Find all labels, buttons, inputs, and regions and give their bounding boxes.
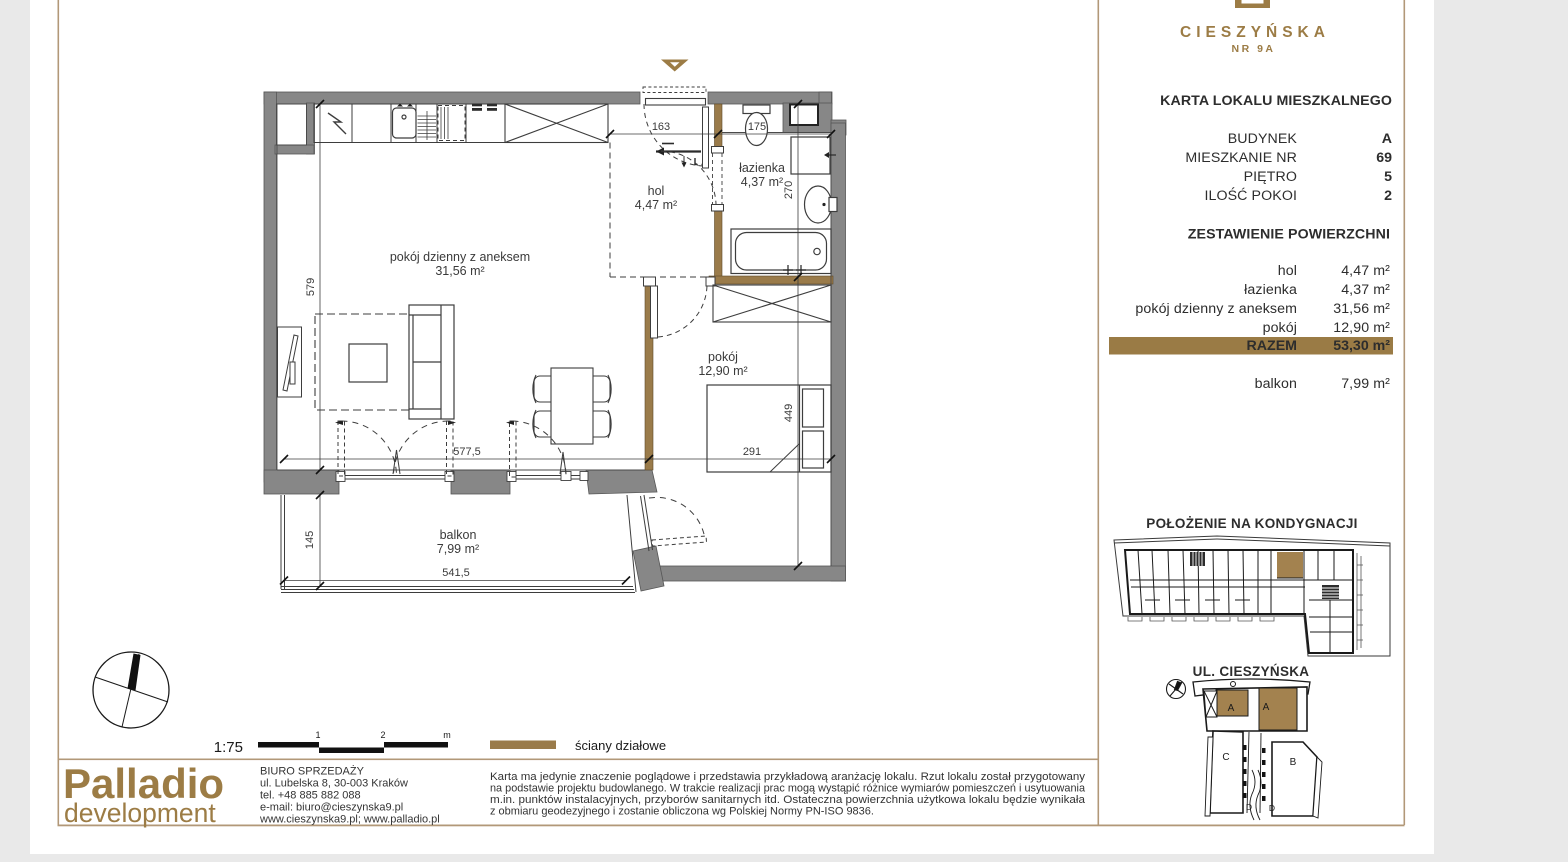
svg-text:pokój: pokój xyxy=(1263,320,1297,336)
svg-text:4,37 m²: 4,37 m² xyxy=(741,175,783,189)
svg-text:4,47 m²: 4,47 m² xyxy=(1341,263,1390,279)
svg-text:31,56 m²: 31,56 m² xyxy=(435,264,484,278)
svg-text:2: 2 xyxy=(380,730,385,740)
svg-text:m: m xyxy=(443,730,451,740)
svg-text:D: D xyxy=(1246,802,1252,812)
svg-text:ZESTAWIENIE POWIERZCHNI: ZESTAWIENIE POWIERZCHNI xyxy=(1188,227,1390,243)
svg-text:A: A xyxy=(1382,131,1392,147)
svg-text:4,37 m²: 4,37 m² xyxy=(1341,282,1390,298)
svg-text:KARTA LOKALU MIESZKALNEGO: KARTA LOKALU MIESZKALNEGO xyxy=(1160,93,1392,109)
svg-text:Karta ma jedynie znaczenie pog: Karta ma jedynie znaczenie poglądowe i p… xyxy=(490,771,1086,783)
svg-text:pokój dzienny z aneksem: pokój dzienny z aneksem xyxy=(390,250,530,264)
svg-text:ul. Lubelska 8, 30-003 Kraków: ul. Lubelska 8, 30-003 Kraków xyxy=(260,778,408,790)
svg-text:development: development xyxy=(64,798,216,828)
svg-text:53,30 m²: 53,30 m² xyxy=(1333,338,1390,354)
svg-text:7,99 m²: 7,99 m² xyxy=(437,542,479,556)
svg-text:31,56 m²: 31,56 m² xyxy=(1333,301,1390,317)
svg-text:541,5: 541,5 xyxy=(442,567,470,579)
svg-text:12,90 m²: 12,90 m² xyxy=(698,364,747,378)
svg-text:579: 579 xyxy=(305,278,317,296)
svg-text:hol: hol xyxy=(648,184,665,198)
svg-text:270: 270 xyxy=(783,181,795,199)
svg-text:NR 9A: NR 9A xyxy=(1231,43,1275,55)
svg-text:A: A xyxy=(1263,702,1270,713)
svg-text:D: D xyxy=(1269,803,1275,813)
svg-text:1:75: 1:75 xyxy=(214,739,243,756)
svg-text:4,47 m²: 4,47 m² xyxy=(635,198,677,212)
svg-text:7,99 m²: 7,99 m² xyxy=(1341,376,1390,392)
svg-text:CIESZYŃSKA: CIESZYŃSKA xyxy=(1180,24,1330,41)
svg-text:e-mail: biuro@cieszynska9.pl: e-mail: biuro@cieszynska9.pl xyxy=(260,802,403,814)
svg-text:PIĘTRO: PIĘTRO xyxy=(1244,169,1297,185)
svg-text:C: C xyxy=(1222,752,1229,763)
svg-text:A: A xyxy=(1228,703,1235,714)
svg-text:12,90 m²: 12,90 m² xyxy=(1333,320,1390,336)
svg-text:pokój dzienny z aneksem: pokój dzienny z aneksem xyxy=(1135,301,1297,317)
svg-text:z obmiaru geodezyjnego i zosta: z obmiaru geodezyjnego i zostanie oblicz… xyxy=(490,806,874,818)
svg-text:balkon: balkon xyxy=(1255,376,1297,392)
svg-text:2: 2 xyxy=(1384,188,1392,204)
svg-text:UL. CIESZYŃSKA: UL. CIESZYŃSKA xyxy=(1193,664,1310,679)
svg-text:5: 5 xyxy=(1384,169,1392,185)
svg-text:tel. +48 885 882 088: tel. +48 885 882 088 xyxy=(260,790,361,802)
svg-text:na podstawie projektu budowlan: na podstawie projektu budowlanego. W tra… xyxy=(490,783,1086,795)
svg-text:www.cieszynska9.pl; www.pallad: www.cieszynska9.pl; www.palladio.pl xyxy=(259,814,440,826)
svg-text:ILOŚĆ POKOI: ILOŚĆ POKOI xyxy=(1204,186,1297,204)
svg-text:B: B xyxy=(1290,757,1297,768)
svg-text:MIESZKANIE NR: MIESZKANIE NR xyxy=(1185,150,1297,166)
svg-text:69: 69 xyxy=(1376,150,1392,166)
svg-text:RAZEM: RAZEM xyxy=(1247,338,1297,354)
svg-text:balkon: balkon xyxy=(440,528,477,542)
svg-text:163: 163 xyxy=(652,121,670,133)
svg-text:291: 291 xyxy=(743,446,761,458)
svg-text:łazienka: łazienka xyxy=(1244,282,1297,298)
svg-text:175: 175 xyxy=(748,121,766,133)
svg-text:577,5: 577,5 xyxy=(453,446,481,458)
svg-text:POŁOŻENIE NA KONDYGNACJI: POŁOŻENIE NA KONDYGNACJI xyxy=(1146,516,1357,531)
svg-text:449: 449 xyxy=(783,404,795,422)
svg-text:łazienka: łazienka xyxy=(739,161,785,175)
svg-text:ściany działowe: ściany działowe xyxy=(575,738,666,753)
svg-text:1: 1 xyxy=(315,730,320,740)
svg-text:145: 145 xyxy=(304,531,316,549)
svg-text:BIURO SPRZEDAŻY: BIURO SPRZEDAŻY xyxy=(260,765,365,778)
svg-text:hol: hol xyxy=(1278,263,1297,279)
svg-text:BUDYNEK: BUDYNEK xyxy=(1228,131,1298,147)
svg-text:pokój: pokój xyxy=(708,350,738,364)
svg-text:m.in. punktów instalacyjnych: m.in. punktów instalacyjnych, przyborów … xyxy=(490,794,1086,806)
